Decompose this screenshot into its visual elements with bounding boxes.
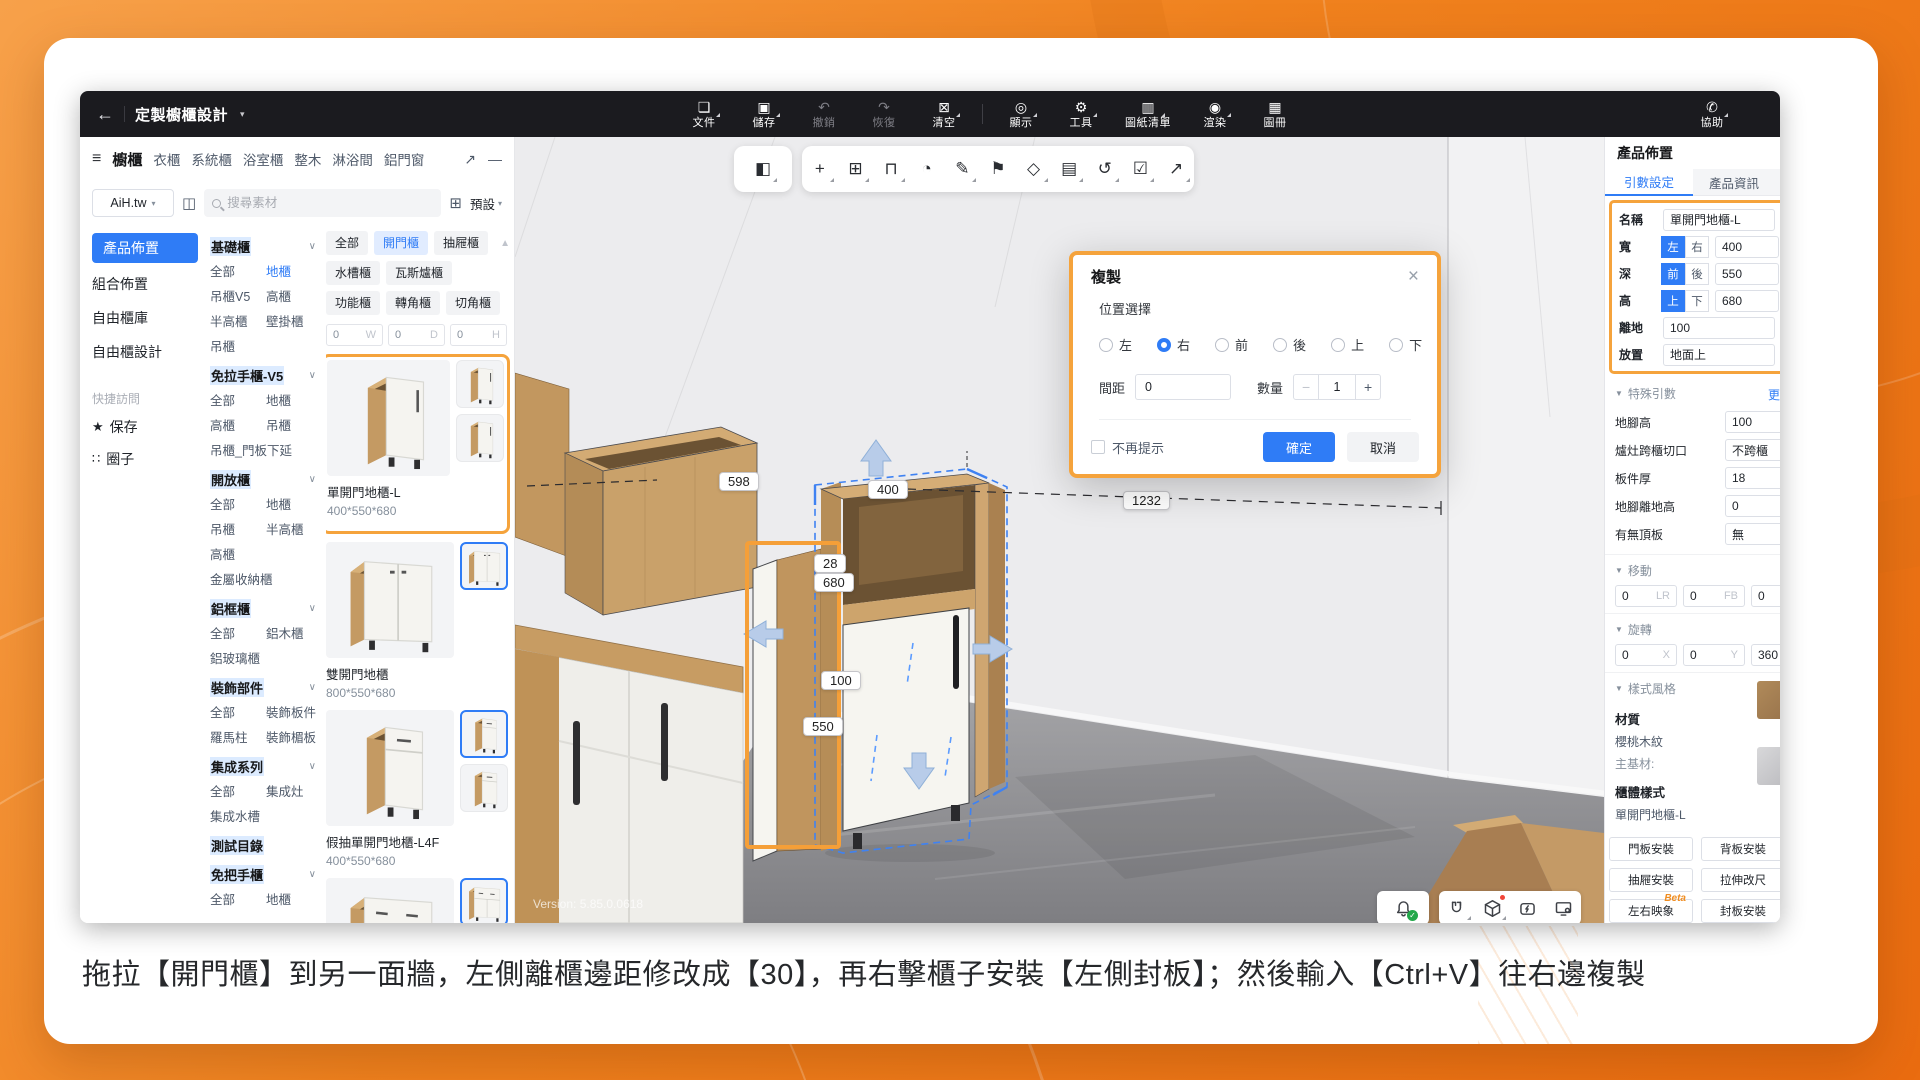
drawing-list-icon: ▥	[1141, 100, 1154, 116]
product-image[interactable]	[327, 360, 450, 476]
quick-access-label: 快捷訪問	[92, 385, 210, 411]
highlight-product-frame: 單開門地櫃-L 400*550*680	[326, 354, 510, 534]
cat-item[interactable]: 地櫃	[266, 389, 322, 414]
stretch-resize-button[interactable]: 拉伸改尺	[1701, 868, 1780, 892]
cat-item[interactable]: 壁掛櫃	[266, 310, 322, 335]
radio-front[interactable]: 前	[1215, 335, 1248, 354]
base-material-label: 主基材:	[1615, 755, 1780, 772]
grid-icon[interactable]: ⊞	[449, 194, 462, 212]
page-background: 拖拉【開門櫃】到另一面牆，左側離櫃邊距修改成【30】，再右擊櫃子安裝【左側封板】…	[0, 0, 1920, 1080]
cat-item[interactable]: 裝飾板件	[266, 701, 322, 726]
wrench-icon: ⚙	[1075, 100, 1088, 116]
chevron-down-icon: ∨	[309, 370, 316, 381]
radio-icon	[1099, 338, 1113, 352]
position-options: 左 右 前 後 上 下	[1099, 335, 1411, 354]
columns-icon[interactable]: ◫	[182, 194, 196, 212]
cat-item[interactable]: 半高櫃	[266, 518, 322, 543]
tutorial-caption: 拖拉【開門櫃】到另一面牆，左側離櫃邊距修改成【30】，再右擊櫃子安裝【左側封板】…	[82, 954, 1782, 996]
view-cube-button[interactable]: ◧	[746, 152, 780, 186]
canvas-toolbar: + ⊞ ⊓ ◔ ✎ ⚑ ◇ ▤ ↺ ☑ ↗	[802, 146, 1194, 192]
cat-item[interactable]: 吊櫃V5	[210, 285, 266, 310]
product-card-single-door[interactable]: 單開門地櫃-L 400*550*680	[327, 360, 504, 518]
minimize-icon[interactable]: —	[488, 151, 502, 168]
spacing-input[interactable]: 0	[1135, 374, 1231, 400]
panel-thickness-input[interactable]: 18	[1725, 467, 1780, 489]
chevron-down-icon: ∨	[309, 869, 316, 880]
nav-circle[interactable]: ∷圈子	[92, 443, 210, 475]
cat-item[interactable]: 半高櫃	[210, 310, 266, 335]
radio-icon	[1157, 338, 1171, 352]
search-input[interactable]	[227, 196, 433, 210]
collapse-icon: ⇅	[210, 923, 221, 924]
dim-label-1232: 1232	[1123, 491, 1170, 510]
library-panel: ≡ 櫥櫃 衣櫃 系統櫃 浴室櫃 整木 淋浴間 鋁門窗 ↗ —	[80, 137, 515, 923]
rotate-y-input[interactable]: 0Y	[1683, 644, 1745, 666]
render-button[interactable]: ◉渲染	[1185, 91, 1245, 137]
section-basic-cabinet[interactable]: 基礎櫃∨	[210, 233, 326, 260]
chevron-down-icon: ∨	[309, 761, 316, 772]
album-icon: ▦	[1268, 100, 1281, 116]
product-column: 全部 開門櫃 抽屜櫃 水槽櫃 瓦斯爐櫃 功能櫃 轉角櫃 切角櫃 ▲	[326, 231, 514, 923]
save-button[interactable]: ▣儲存	[734, 91, 794, 137]
dim-label-680: 680	[814, 573, 854, 592]
width-input[interactable]: 400	[1715, 236, 1779, 258]
rotate-section[interactable]: ▼旋轉	[1615, 614, 1780, 644]
search-icon	[212, 199, 221, 208]
radio-icon	[1273, 338, 1287, 352]
cat-item[interactable]: 鋁木櫃	[266, 622, 322, 647]
anchor-right-button[interactable]: 右	[1685, 236, 1709, 258]
cat-item[interactable]: 吊櫃	[210, 518, 266, 543]
search-box[interactable]	[204, 189, 441, 217]
quantity-label: 數量	[1257, 378, 1283, 397]
product-variant-thumb-selected[interactable]	[460, 542, 508, 590]
highlight-params-frame: 名稱 單開門地櫃-L 寬 左 右 400 深 前 後	[1609, 200, 1780, 374]
chevron-down-icon: ∨	[309, 474, 316, 485]
check-badge: ✓	[1407, 910, 1418, 921]
product-size: 800*550*680	[326, 686, 510, 700]
depth-label: 深	[1619, 265, 1661, 282]
cat-item[interactable]: 羅馬柱	[210, 726, 266, 751]
menu-icon[interactable]: ≡	[92, 150, 101, 168]
cat-item-active[interactable]: 地櫃	[266, 260, 322, 285]
depth-input[interactable]: 550	[1715, 263, 1779, 285]
product-variant-thumb[interactable]	[460, 764, 508, 812]
project-title[interactable]: 定製櫥櫃設計	[135, 104, 228, 125]
nav-product-layout[interactable]: 產品佈置	[92, 233, 198, 263]
foot-height-input[interactable]: 100	[1725, 411, 1780, 433]
chip-gas-stove-cabinet[interactable]: 瓦斯爐櫃	[386, 261, 452, 285]
foot-offset-input[interactable]: 0	[1725, 495, 1780, 517]
star-icon: ★	[92, 419, 104, 435]
cat-item[interactable]: 高櫃	[210, 543, 266, 568]
dim-label-400: 400	[868, 480, 908, 499]
depth-filter-input[interactable]: 0D	[388, 324, 445, 346]
side-panel-install-button[interactable]: 封板安裝	[1701, 899, 1780, 923]
chevron-down-icon: ∨	[309, 603, 316, 614]
add-plus-button[interactable]: +	[803, 152, 837, 186]
anchor-left-button[interactable]: 左	[1661, 236, 1685, 258]
tab-aluminum-door[interactable]: 鋁門窗	[384, 149, 425, 169]
panel-list-button[interactable]: ▤	[1052, 152, 1086, 186]
undo-button[interactable]: ↶撤銷	[794, 91, 854, 137]
product-size: 400*550*680	[326, 854, 510, 868]
top-board-select[interactable]: 無	[1725, 523, 1780, 545]
filter-chips: 全部 開門櫃 抽屜櫃 水槽櫃 瓦斯爐櫃 功能櫃 轉角櫃 切角櫃 ▲	[326, 231, 502, 315]
nav-free-cabinet-design[interactable]: 自由櫃設計	[92, 335, 210, 369]
cat-item[interactable]: 地櫃	[266, 888, 322, 913]
quantity-stepper: − 1 +	[1293, 374, 1381, 400]
cat-item[interactable]: 全部	[210, 389, 266, 414]
app-window: ← 定製櫥櫃設計 ▾ ❏文件 ▣儲存 ↶撤銷 ↷恢復 ⊠清空 ◎顯示 ⚙工具 ▥…	[80, 91, 1780, 923]
size-filter-row: 0W 0D 0H	[326, 324, 510, 346]
anchor-front-button[interactable]: 前	[1661, 263, 1685, 285]
external-link-icon[interactable]: ↗	[464, 151, 476, 168]
view-toolbar: ◧	[734, 146, 792, 192]
scroll-up-icon[interactable]: ▲	[500, 238, 510, 249]
display-icon: ◎	[1015, 100, 1027, 116]
radio-icon	[1331, 338, 1345, 352]
product-variant-thumb-selected[interactable]	[460, 878, 508, 923]
height-filter-input[interactable]: 0H	[450, 324, 507, 346]
mirror-lr-button[interactable]: 左右映象Beta	[1609, 899, 1693, 923]
main-toolbar: ❏文件 ▣儲存 ↶撤銷 ↷恢復 ⊠清空 ◎顯示 ⚙工具 ▥圖紙清單 ◉渲染 ▦圖…	[674, 91, 1305, 137]
cat-item[interactable]: 裝飾楣板	[266, 726, 322, 751]
file-button[interactable]: ❏文件	[674, 91, 734, 137]
product-image[interactable]	[326, 878, 454, 923]
dim-label-28: 28	[814, 554, 846, 573]
inspector-header: 產品佈置	[1605, 137, 1780, 169]
radio-up[interactable]: 上	[1331, 335, 1364, 354]
plus-button[interactable]: +	[1356, 375, 1380, 399]
undo-icon: ↶	[818, 100, 830, 116]
checkbox-icon	[1091, 440, 1105, 454]
divider	[124, 106, 125, 122]
chip-function-cabinet[interactable]: 功能櫃	[326, 291, 380, 315]
back-button[interactable]: ←	[96, 104, 114, 125]
dim-label-598: 598	[719, 472, 759, 491]
placement-label: 放置	[1619, 346, 1661, 363]
product-image[interactable]	[326, 542, 454, 658]
display-button[interactable]: ◎顯示	[991, 91, 1051, 137]
cat-item[interactable]: 全部	[210, 260, 266, 285]
anchor-back-button[interactable]: 後	[1685, 263, 1709, 285]
cat-item[interactable]: 集成灶	[266, 780, 322, 805]
back-panel-install-button[interactable]: 背板安裝	[1701, 837, 1780, 861]
chevron-down-icon: ∨	[309, 241, 316, 252]
width-filter-input[interactable]: 0W	[326, 324, 383, 346]
quick-render-camera-icon[interactable]	[1513, 893, 1543, 923]
offset-input[interactable]: 100	[1663, 317, 1775, 339]
product-variant-thumb[interactable]	[456, 360, 504, 408]
rotate-z-input[interactable]: 360	[1751, 644, 1780, 666]
cancel-button[interactable]: 取消	[1347, 432, 1419, 462]
product-size: 400*550*680	[327, 504, 504, 518]
offset-label: 離地	[1619, 319, 1661, 336]
section-no-handle-cabinet[interactable]: 免把手櫃∨	[210, 861, 326, 888]
tab-parameters[interactable]: 引數設定	[1605, 169, 1693, 196]
material-swatch[interactable]	[1757, 681, 1780, 719]
snap-magnet-icon[interactable]	[1442, 893, 1472, 923]
placement-select[interactable]: 地面上	[1663, 344, 1775, 366]
tab-cabinet[interactable]: 櫥櫃	[112, 149, 142, 170]
version-text: Version: 5.85.0.0618	[533, 897, 643, 911]
style-section[interactable]: ▼樣式風格	[1615, 673, 1780, 703]
radio-icon	[1389, 338, 1403, 352]
product-name: 假抽單開門地櫃-L4F	[326, 832, 510, 851]
radio-icon	[1215, 338, 1229, 352]
more-link[interactable]: 更多	[1768, 386, 1780, 403]
album-button[interactable]: ▦圖冊	[1245, 91, 1305, 137]
product-card-double-door[interactable]: 雙開門地櫃 800*550*680	[326, 542, 510, 700]
paint-brush-button[interactable]: ✎	[945, 152, 979, 186]
rotate-x-input[interactable]: 0X	[1615, 644, 1677, 666]
library-tabs: ≡ 櫥櫃 衣櫃 系統櫃 浴室櫃 整木 淋浴間 鋁門窗 ↗ —	[80, 137, 514, 181]
content-card: 拖拉【開門櫃】到另一面牆，左側離櫃邊距修改成【30】，再右擊櫃子安裝【左側封板】…	[44, 38, 1878, 1044]
confirm-button[interactable]: 確定	[1263, 432, 1335, 462]
anchor-bottom-button[interactable]: 下	[1685, 290, 1709, 312]
triangle-down-icon: ▼	[1615, 684, 1623, 693]
width-label: 寬	[1619, 238, 1661, 255]
foot-height-label: 地腳高	[1615, 414, 1725, 431]
redo-icon: ↷	[878, 100, 890, 116]
anchor-top-button[interactable]: 上	[1661, 290, 1685, 312]
special-params-section[interactable]: ▼特殊引數	[1615, 378, 1780, 408]
scene-3d	[515, 137, 1604, 923]
cat-item[interactable]: 地櫃	[266, 493, 322, 518]
body-style-value: 單開門地櫃-L	[1615, 806, 1780, 823]
cat-item[interactable]: 吊櫃	[210, 335, 266, 360]
spacing-label: 間距	[1099, 378, 1125, 397]
dont-show-again-checkbox[interactable]: 不再提示	[1091, 438, 1164, 457]
library-nav: 產品佈置 組合佈置 自由櫃庫 自由櫃設計 快捷訪問 ★保存 ∷圈子	[92, 231, 210, 923]
notification-pill: ✓	[1377, 891, 1429, 923]
trash-icon: ⊠	[938, 100, 950, 116]
tab-shower[interactable]: 淋浴間	[332, 149, 373, 169]
chevron-down-icon: ∨	[309, 682, 316, 693]
copy-dialog: 複製 × 位置選擇 左 右 前 後 上 下 間距 0	[1069, 251, 1441, 478]
collapse-all-button[interactable]: ⇅ 全部收起	[210, 921, 326, 923]
radio-right-selected[interactable]: 右	[1157, 335, 1190, 354]
tab-wardrobe[interactable]: 衣櫃	[153, 149, 180, 169]
furniture-button[interactable]: ⊓	[874, 152, 908, 186]
cat-item[interactable]: 全部	[210, 888, 266, 913]
clear-button[interactable]: ⊠清空	[914, 91, 974, 137]
view-3d-cube-icon[interactable]	[1477, 893, 1507, 923]
tab-product-info[interactable]: 產品資訊	[1693, 169, 1780, 196]
flag-button[interactable]: ⚑	[981, 152, 1015, 186]
triangle-down-icon: ▼	[1615, 625, 1623, 634]
chip-corner-cabinet[interactable]: 轉角櫃	[386, 291, 440, 315]
beta-badge: Beta	[1664, 893, 1686, 904]
tab-solid-wood[interactable]: 整木	[294, 149, 321, 169]
export-button[interactable]: ↗	[1159, 152, 1193, 186]
move-section[interactable]: ▼移動	[1615, 555, 1780, 585]
headset-icon: ✆	[1706, 100, 1718, 116]
product-variant-thumb-selected[interactable]	[460, 710, 508, 758]
cat-item[interactable]: 吊櫃_門板下延	[210, 439, 322, 464]
top-board-label: 有無頂板	[1615, 526, 1725, 543]
stove-cut-select[interactable]: 不跨櫃	[1725, 439, 1780, 461]
tab-system-cabinet[interactable]: 系統櫃	[191, 149, 232, 169]
chip-sink-cabinet[interactable]: 水槽櫃	[326, 261, 380, 285]
file-icon: ❏	[698, 100, 711, 116]
cat-item[interactable]: 集成水槽	[210, 805, 322, 830]
minus-button[interactable]: −	[1294, 375, 1318, 399]
height-label: 高	[1619, 292, 1661, 309]
cat-item[interactable]: 吊櫃	[266, 414, 322, 439]
batch-check-button[interactable]: ☑	[1123, 152, 1157, 186]
move-lr-input[interactable]: 0LR	[1615, 585, 1677, 607]
camera-icon: ◉	[1209, 100, 1221, 116]
palette-button[interactable]: ◔	[910, 152, 944, 186]
door-install-button[interactable]: 門板安裝	[1609, 837, 1693, 861]
top-bar: ← 定製櫥櫃設計 ▾ ❏文件 ▣儲存 ↶撤銷 ↷恢復 ⊠清空 ◎顯示 ⚙工具 ▥…	[80, 91, 1780, 137]
chip-cut-corner-cabinet[interactable]: 切角櫃	[446, 291, 500, 315]
tools-button[interactable]: ⚙工具	[1051, 91, 1111, 137]
radio-left[interactable]: 左	[1099, 335, 1132, 354]
body-style-label: 櫃體樣式	[1615, 782, 1780, 801]
notification-bell-icon[interactable]: ✓	[1388, 893, 1418, 923]
body-style-swatch[interactable]	[1757, 747, 1780, 785]
redo-button[interactable]: ↷恢復	[854, 91, 914, 137]
add-model-button[interactable]: ⊞	[838, 152, 872, 186]
drawing-list-button[interactable]: ▥圖紙清單	[1111, 91, 1185, 137]
tab-bathroom-cabinet[interactable]: 浴室櫃	[243, 149, 284, 169]
product-name: 雙開門地櫃	[326, 664, 510, 683]
radio-down[interactable]: 下	[1389, 335, 1422, 354]
measure-button[interactable]: ◇	[1017, 152, 1051, 186]
panel-thickness-label: 板件厚	[1615, 470, 1725, 487]
radio-back[interactable]: 後	[1273, 335, 1306, 354]
dim-label-550: 550	[803, 717, 843, 736]
triangle-down-icon: ▼	[1615, 389, 1623, 398]
position-select-label: 位置選擇	[1099, 299, 1411, 318]
move-ud-input[interactable]: 0	[1751, 585, 1780, 607]
close-icon[interactable]: ×	[1408, 267, 1419, 286]
cat-item[interactable]: 全部	[210, 780, 266, 805]
foot-offset-label: 地腳離地高	[1615, 498, 1725, 515]
category-list: 基礎櫃∨ 全部 地櫃 吊櫃V5 高櫃 半高櫃 壁掛櫃 吊櫃 免拉手櫃-V5∨	[210, 231, 326, 923]
nav-free-cabinet-library[interactable]: 自由櫃庫	[92, 301, 210, 335]
viewport-status-pill	[1439, 891, 1581, 923]
drawer-install-button[interactable]: 抽屜安裝	[1609, 868, 1693, 892]
chip-drawer-cabinet[interactable]: 抽屜櫃	[434, 231, 488, 255]
material-label: 材質	[1615, 709, 1780, 728]
chip-door-cabinet[interactable]: 開門櫃	[374, 231, 428, 255]
cat-item[interactable]: 全部	[210, 701, 266, 726]
cat-item[interactable]: 高櫃	[210, 414, 266, 439]
height-input[interactable]: 680	[1715, 290, 1779, 312]
source-select[interactable]: AiH.tw▾	[92, 189, 174, 217]
product-name: 單開門地櫃-L	[327, 482, 504, 501]
nav-combo-layout[interactable]: 組合佈置	[92, 267, 210, 301]
triangle-down-icon: ▼	[1615, 566, 1623, 575]
product-image[interactable]	[326, 710, 454, 826]
nav-save[interactable]: ★保存	[92, 411, 210, 443]
lasso-button[interactable]: ↺	[1088, 152, 1122, 186]
stove-cut-label: 爐灶跨櫃切口	[1615, 442, 1725, 459]
help-button[interactable]: ✆協助	[1682, 91, 1742, 137]
viewport-3d[interactable]: ◧ + ⊞ ⊓ ◔ ✎ ⚑ ◇ ▤ ↺ ☑ ↗	[515, 137, 1604, 923]
product-card-fake-drawer[interactable]: 假抽單開門地櫃-L4F 400*550*680	[326, 710, 510, 868]
material-value: 櫻桃木紋	[1615, 733, 1780, 750]
divider	[982, 104, 983, 124]
section-integrated-series[interactable]: 集成系列∨	[210, 753, 326, 780]
dialog-title: 複製	[1091, 266, 1121, 287]
library-search-row: AiH.tw▾ ◫ ⊞ 預設▾	[80, 181, 514, 225]
chevron-down-icon: ▾	[240, 109, 245, 120]
section-decor-parts[interactable]: 裝飾部件∨	[210, 674, 326, 701]
product-variant-thumb[interactable]	[456, 414, 504, 462]
move-fb-input[interactable]: 0FB	[1683, 585, 1745, 607]
chip-all[interactable]: 全部	[326, 231, 368, 255]
preset-dropdown[interactable]: 預設▾	[470, 194, 502, 213]
product-card-partial[interactable]	[326, 878, 510, 923]
cat-item[interactable]: 全部	[210, 622, 266, 647]
name-input[interactable]: 單開門地櫃-L	[1663, 209, 1775, 231]
cat-item[interactable]: 金屬收納櫃	[210, 568, 322, 593]
quantity-value[interactable]: 1	[1318, 375, 1356, 399]
cat-item[interactable]: 鋁玻璃櫃	[210, 647, 322, 672]
name-label: 名稱	[1619, 211, 1661, 228]
save-icon: ▣	[757, 100, 770, 116]
section-aluminum-frame[interactable]: 鋁框櫃∨	[210, 595, 326, 622]
display-settings-icon[interactable]	[1548, 893, 1578, 923]
group-icon: ∷	[92, 451, 100, 467]
dim-label-100: 100	[821, 671, 861, 690]
inspector-panel: 產品佈置 引數設定 產品資訊 名稱 單開門地櫃-L 寬 左 右	[1604, 137, 1780, 923]
cat-item[interactable]: 全部	[210, 493, 266, 518]
red-dot-badge	[1500, 895, 1505, 900]
cat-item[interactable]: 高櫃	[266, 285, 322, 310]
section-test-catalog[interactable]: 測試目錄	[210, 832, 326, 859]
section-handleless-v5[interactable]: 免拉手櫃-V5∨	[210, 362, 326, 389]
section-open-cabinet[interactable]: 開放櫃∨	[210, 466, 326, 493]
